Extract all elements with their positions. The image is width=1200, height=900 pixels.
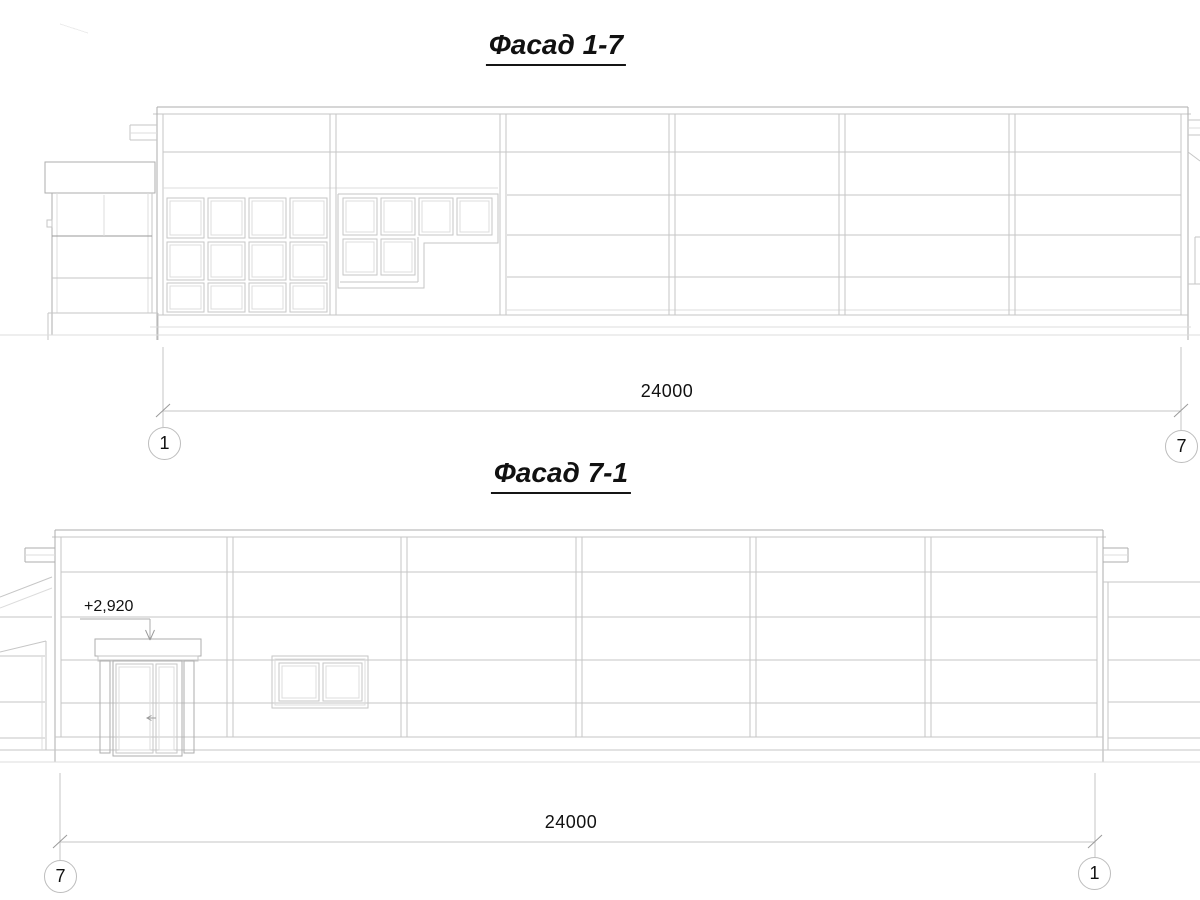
drawing-canvas bbox=[0, 0, 1200, 900]
facade-7-1-window bbox=[272, 656, 368, 708]
facade-7-1-right-annex bbox=[1103, 582, 1200, 750]
facade-7-1-left-diagonals bbox=[0, 577, 52, 652]
facade-7-1-title: Фасад 7-1 bbox=[491, 457, 631, 494]
facade-7-1-linework bbox=[0, 530, 1200, 762]
facade-1-7-dimension-value: 24000 bbox=[641, 381, 694, 402]
facade-7-1-dimension-value: 24000 bbox=[545, 812, 598, 833]
elevation-mark-value: +2,920 bbox=[84, 598, 133, 616]
facade-1-7-title: Фасад 1-7 bbox=[486, 29, 626, 66]
facade-1-7-left-annex bbox=[45, 162, 158, 340]
facade-1-7-linework bbox=[130, 107, 1191, 340]
axis-bubble-top-right: 7 bbox=[1165, 430, 1198, 463]
facade-7-1-left-side bbox=[0, 617, 52, 750]
facade-7-1-entrance bbox=[80, 619, 201, 757]
ground-lines bbox=[0, 335, 1200, 771]
elevation-drawing-sheet: Фасад 1-7 Фасад 7-1 24000 24000 +2,920 1… bbox=[0, 0, 1200, 900]
axis-bubble-top-left: 1 bbox=[148, 427, 181, 460]
facade-1-7-right-edge-diagonal bbox=[1188, 152, 1200, 161]
axis-bubble-bottom-left: 7 bbox=[44, 860, 77, 893]
axis-bubble-bottom-right: 1 bbox=[1078, 857, 1111, 890]
facade-7-1-entrance-marks bbox=[146, 630, 157, 721]
facade-1-7-right-edge bbox=[1188, 120, 1200, 284]
facade-1-7-windows bbox=[167, 194, 498, 312]
